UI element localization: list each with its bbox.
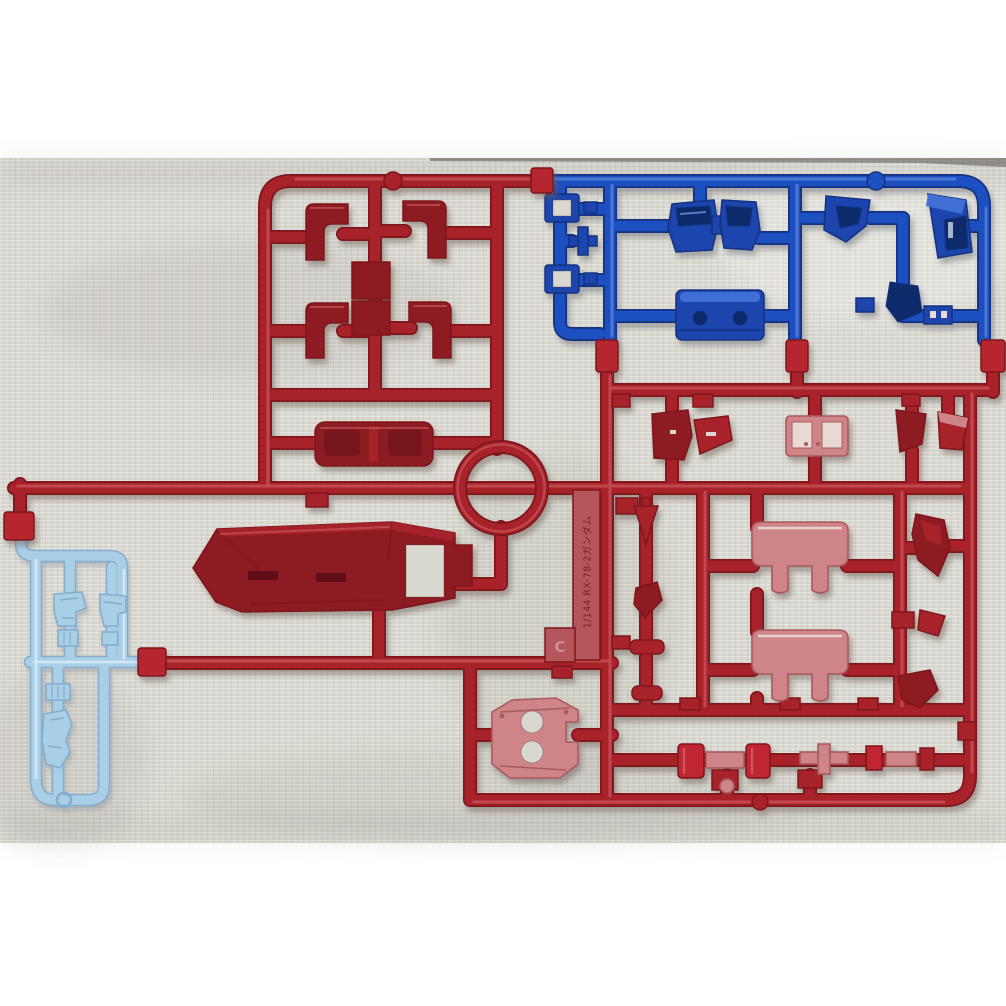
gate-letter: C bbox=[554, 638, 565, 656]
small-block-part bbox=[856, 298, 874, 312]
angled-part-2 bbox=[938, 412, 968, 450]
ankle-block-left bbox=[58, 630, 78, 646]
clamp-blue-2 bbox=[786, 340, 808, 372]
backpack-plate-part bbox=[492, 698, 578, 778]
clamp-blue-1 bbox=[596, 340, 618, 372]
core-vehicle-part bbox=[315, 422, 433, 466]
small-joint-1 bbox=[584, 202, 597, 213]
square-block-2 bbox=[352, 301, 390, 335]
core-block-part bbox=[676, 290, 764, 340]
square-block-1 bbox=[352, 262, 390, 299]
chest-duct-right bbox=[720, 200, 760, 250]
ankle-block-right bbox=[102, 632, 118, 645]
small-joint-2 bbox=[584, 273, 597, 284]
small-bar-part bbox=[886, 752, 916, 766]
clamp-blue-left bbox=[531, 168, 553, 193]
small-end-part bbox=[920, 748, 934, 770]
chest-vent-part bbox=[786, 416, 848, 456]
sprue-photo: 1/144 RX-78-2ガンダム C bbox=[0, 0, 1006, 1006]
clamp-blue-3 bbox=[981, 340, 1005, 372]
sprue-gate-bump-top bbox=[384, 172, 402, 190]
clamp-lightblue-right bbox=[138, 648, 166, 676]
tag-molded-text: 1/144 RX-78-2ガンダム bbox=[582, 516, 594, 629]
clamp-lightblue-top bbox=[4, 512, 34, 540]
sprue-gate-bump-bottom bbox=[752, 794, 768, 810]
photo-stage: 1/144 RX-78-2ガンダム C bbox=[0, 0, 1006, 1006]
sprue-gate-bump-blue bbox=[867, 172, 885, 190]
small-part-r1 bbox=[892, 612, 914, 628]
two-hole-part bbox=[924, 306, 952, 324]
small-cyl-part bbox=[866, 746, 882, 770]
chest-duct-left bbox=[668, 200, 718, 252]
photo-area: 1/144 RX-78-2ガンダム C bbox=[0, 158, 1006, 850]
chest-armor-part bbox=[193, 522, 472, 612]
